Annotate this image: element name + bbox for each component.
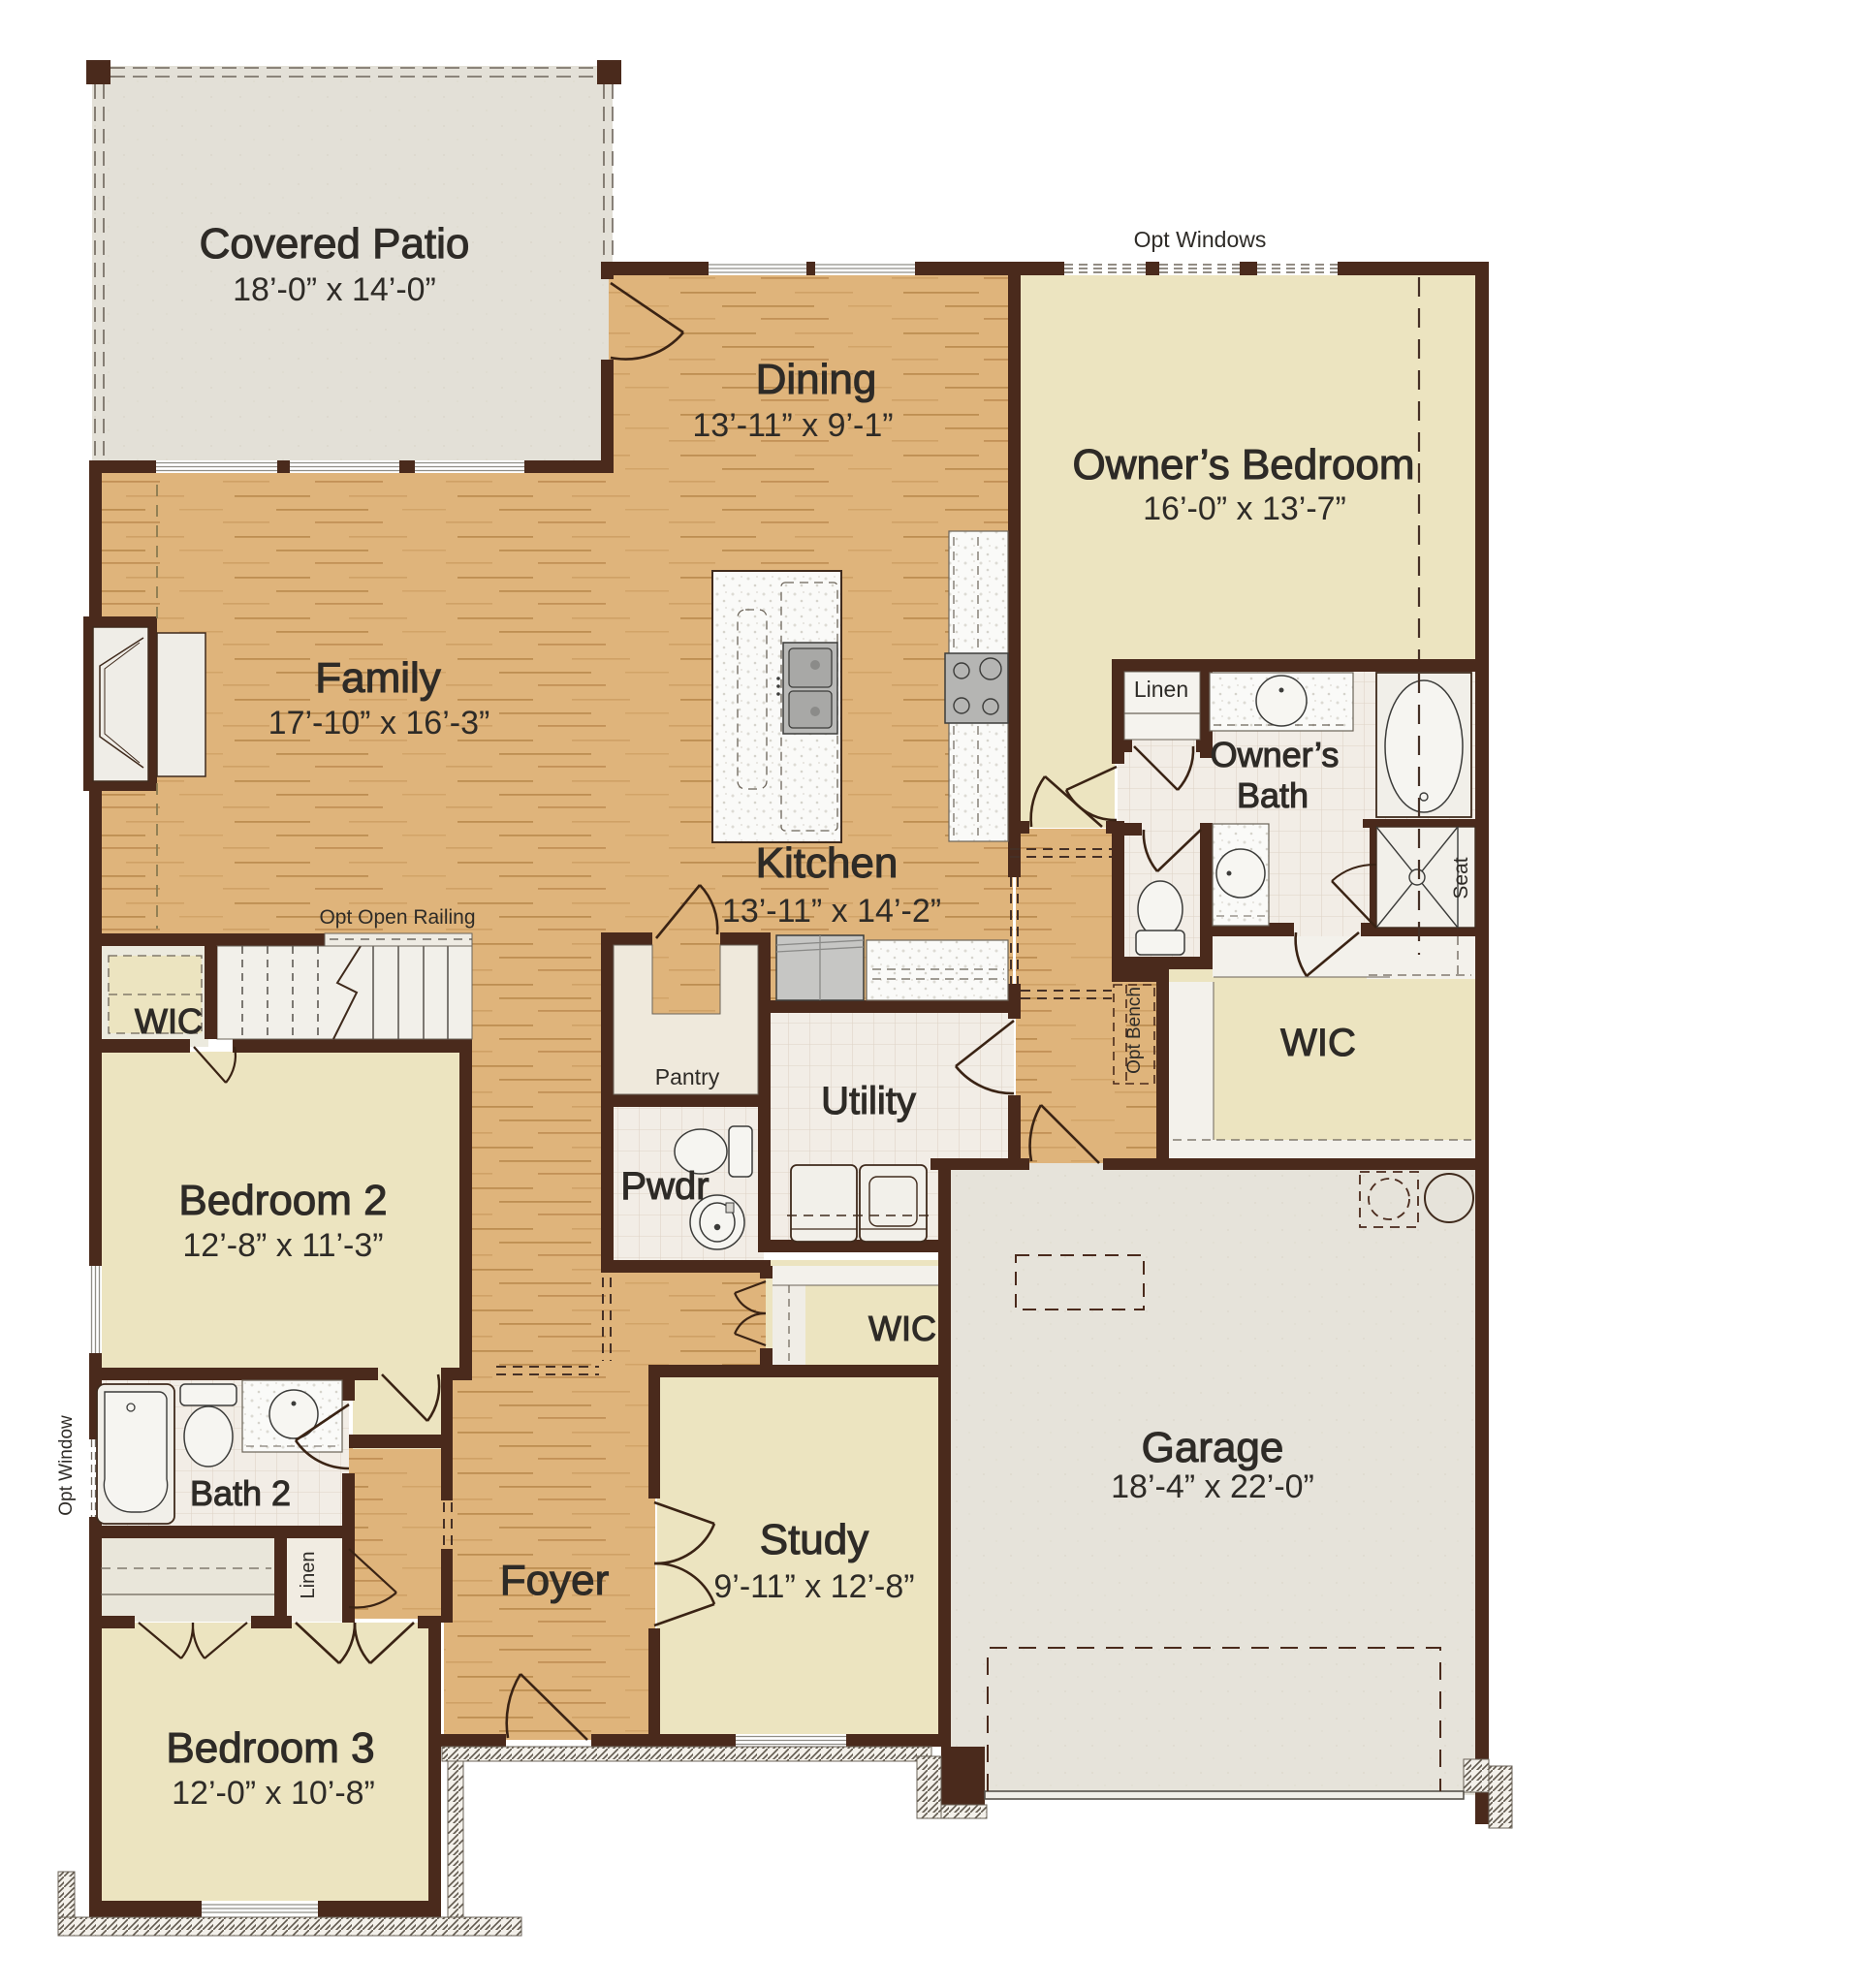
- svg-text:Opt Window: Opt Window: [56, 1415, 77, 1516]
- svg-text:Linen: Linen: [1134, 677, 1188, 702]
- svg-text:Foyer: Foyer: [500, 1557, 609, 1604]
- svg-text:Bath 2: Bath 2: [190, 1473, 291, 1513]
- svg-text:Covered Patio: Covered Patio: [200, 220, 470, 268]
- svg-text:Family: Family: [315, 654, 441, 702]
- svg-text:Pwdr: Pwdr: [620, 1165, 709, 1208]
- svg-text:Opt Bench: Opt Bench: [1124, 987, 1145, 1074]
- svg-text:Owner’s Bedroom: Owner’s Bedroom: [1073, 441, 1415, 489]
- svg-text:Opt Windows: Opt Windows: [1134, 227, 1267, 252]
- svg-text:13’-11” x 14’-2”: 13’-11” x 14’-2”: [722, 893, 941, 930]
- svg-text:Linen: Linen: [298, 1552, 319, 1599]
- svg-text:13’-11” x 9’-1”: 13’-11” x 9’-1”: [692, 407, 893, 444]
- svg-text:WIC: WIC: [1280, 1022, 1356, 1064]
- svg-text:12’-8” x 11’-3”: 12’-8” x 11’-3”: [182, 1227, 383, 1264]
- svg-text:9’-11” x 12’-8”: 9’-11” x 12’-8”: [713, 1568, 914, 1605]
- svg-text:Owner’s: Owner’s: [1211, 735, 1340, 774]
- svg-text:Garage: Garage: [1142, 1424, 1284, 1471]
- svg-text:Opt Open Railing: Opt Open Railing: [319, 906, 475, 929]
- svg-text:WIC: WIC: [135, 1001, 203, 1041]
- svg-text:Seat: Seat: [1450, 857, 1472, 899]
- svg-text:Bath: Bath: [1237, 775, 1309, 815]
- svg-text:Bedroom 3: Bedroom 3: [166, 1724, 374, 1772]
- svg-text:WIC: WIC: [868, 1309, 936, 1348]
- svg-text:12’-0” x 10’-8”: 12’-0” x 10’-8”: [172, 1775, 375, 1812]
- svg-text:Bedroom 2: Bedroom 2: [178, 1177, 387, 1224]
- svg-text:Study: Study: [760, 1516, 869, 1563]
- svg-text:Pantry: Pantry: [655, 1064, 720, 1089]
- svg-text:17’-10” x 16’-3”: 17’-10” x 16’-3”: [268, 705, 490, 742]
- svg-text:Kitchen: Kitchen: [756, 839, 899, 887]
- svg-text:18’-0” x 14’-0”: 18’-0” x 14’-0”: [233, 271, 436, 308]
- svg-text:16’-0” x 13’-7”: 16’-0” x 13’-7”: [1143, 490, 1346, 527]
- svg-text:Utility: Utility: [821, 1080, 916, 1122]
- svg-text:18’-4” x 22’-0”: 18’-4” x 22’-0”: [1111, 1468, 1314, 1505]
- svg-text:Dining: Dining: [756, 356, 877, 403]
